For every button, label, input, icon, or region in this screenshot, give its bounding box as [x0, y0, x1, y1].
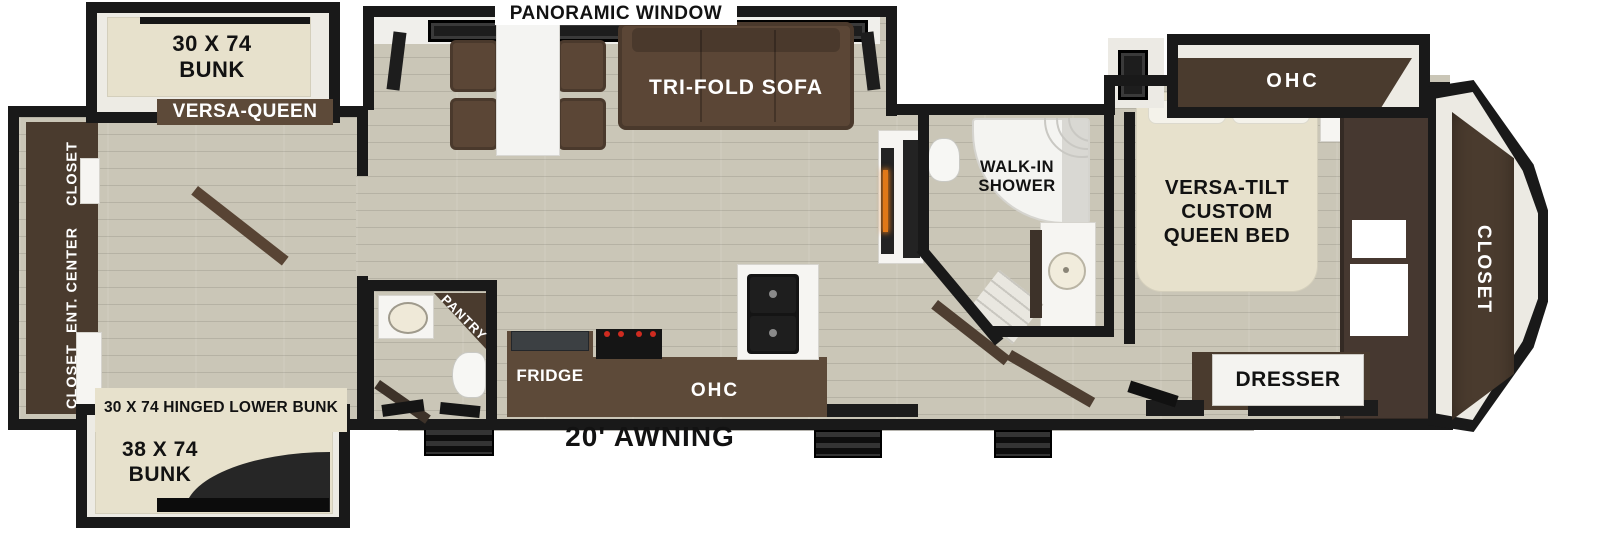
dinette-chair [558, 98, 606, 150]
hinged-lower-bunk-label: 30 X 74 HINGED LOWER BUNK [95, 399, 347, 417]
wall-living-right-step [886, 6, 897, 116]
fireplace-flame [883, 170, 888, 232]
fridge-top [511, 331, 589, 351]
queen-bed-label: VERSA-TILT CUSTOM QUEEN BED [1146, 176, 1308, 249]
lower-bunk-tv-shelf [157, 498, 329, 512]
wall-living-left-upper [363, 6, 374, 110]
entry-steps [814, 430, 882, 458]
wall-bath-bottom [988, 326, 1114, 337]
sink-drain [769, 290, 777, 298]
upper-bunk-label: 30 X 74 BUNK [147, 31, 277, 83]
rear-closet-top-label: CLOSET [58, 128, 88, 220]
wall-bottom-main [363, 419, 1453, 430]
sink-drain [1063, 267, 1069, 273]
burner-knob [618, 331, 624, 337]
front-closet-label: CLOSET [1468, 210, 1498, 330]
versa-queen-label: VERSA-QUEEN [157, 101, 333, 123]
wall-bedroom-left [1124, 112, 1135, 344]
awning-label: 20' AWNING [545, 420, 755, 453]
stove-cooktop [596, 329, 662, 359]
half-bath-toilet [452, 352, 486, 398]
tri-fold-sofa-label: TRI-FOLD SOFA [628, 76, 844, 101]
main-bath-sink [1048, 252, 1086, 290]
wall-bath-right [1104, 112, 1114, 336]
wall-bedroom-top-left [1104, 75, 1172, 86]
rv-floorplan-diagram: CLOSET ENT. CENTER CLOSET 30 X 74 BUNK V… [0, 0, 1600, 545]
rear-bedroom-doorway [356, 176, 372, 276]
sink-drain [769, 329, 777, 337]
walk-in-shower-label: WALK-IN SHOWER [950, 158, 1084, 197]
main-bath-cabinet-door [1030, 230, 1042, 318]
bedroom-ohc-label: OHC [1178, 70, 1408, 94]
dresser-label: DRESSER [1212, 368, 1364, 393]
panoramic-window-label: PANORAMIC WINDOW [495, 3, 737, 25]
fridge-label: FRIDGE [507, 366, 593, 386]
half-bath-sink [388, 302, 428, 334]
dinette-chair [450, 40, 498, 92]
sofa-back-cushion [632, 28, 840, 52]
entry-steps [994, 430, 1052, 458]
burner-knob [650, 331, 656, 337]
rear-ent-center-label: ENT. CENTER [58, 226, 88, 334]
entry-steps [424, 428, 494, 456]
upper-bunk-window [140, 17, 310, 24]
dinette-chair [450, 98, 498, 150]
dinette-chair [558, 40, 606, 92]
kitchen-sink [747, 274, 799, 354]
burner-knob [604, 331, 610, 337]
wardrobe-opening [1352, 220, 1406, 258]
dinette-table [496, 24, 560, 156]
wall-bath-left [918, 112, 929, 252]
wardrobe-opening [1350, 264, 1408, 336]
lower-bunk-label: 38 X 74 BUNK [100, 438, 220, 488]
kitchen-ohc-label: OHC [635, 380, 795, 402]
burner-knob [636, 331, 642, 337]
entry-door-mat [820, 404, 918, 417]
